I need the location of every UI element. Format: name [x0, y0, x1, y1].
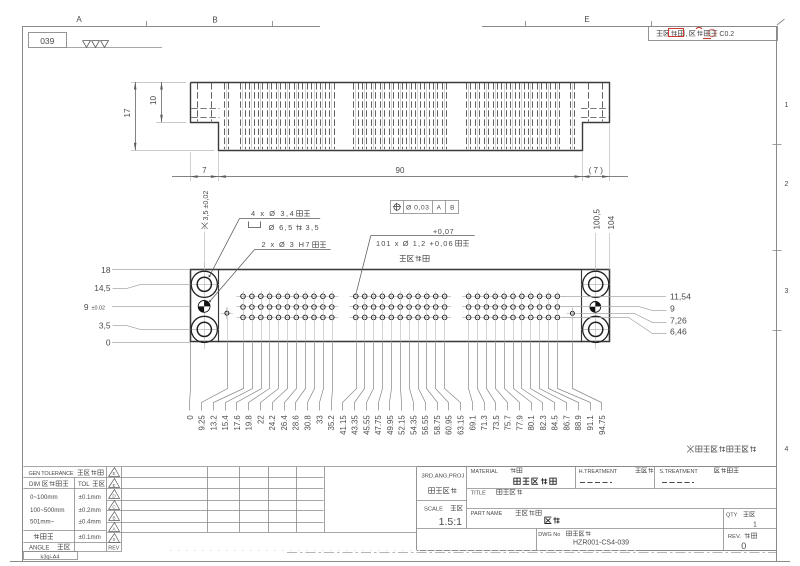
svg-text:49.95: 49.95 [386, 415, 395, 435]
svg-text:15.4: 15.4 [221, 415, 230, 431]
svg-text:( 7 ): ( 7 ) [589, 166, 604, 175]
svg-text:S.TREATMENT: S.TREATMENT [659, 469, 698, 475]
svg-text:9.25: 9.25 [198, 415, 207, 431]
svg-text:82.3: 82.3 [539, 415, 548, 430]
svg-text:REV.: REV. [728, 534, 741, 540]
svg-text:QTY: QTY [726, 513, 738, 519]
svg-text:±0.1mm: ±0.1mm [79, 494, 101, 501]
svg-text:9: 9 [84, 302, 89, 312]
svg-text:17: 17 [123, 108, 132, 118]
svg-text:17.6: 17.6 [233, 415, 242, 430]
svg-text:9: 9 [670, 303, 675, 313]
svg-text:GEN TOLERANCE: GEN TOLERANCE [29, 471, 74, 477]
svg-text:73.5: 73.5 [492, 415, 501, 431]
svg-text:C: C [112, 505, 116, 510]
svg-text:DIM: DIM [29, 482, 40, 488]
svg-text:104: 104 [607, 215, 616, 229]
svg-text:TITLE: TITLE [471, 490, 486, 496]
svg-text:3,5: 3,5 [306, 223, 320, 232]
svg-text:0: 0 [186, 415, 195, 420]
svg-text:33: 33 [315, 415, 324, 424]
svg-text:E: E [584, 15, 589, 24]
svg-text:63.15: 63.15 [457, 415, 466, 435]
svg-text:47.75: 47.75 [374, 415, 383, 435]
svg-text:3,5: 3,5 [99, 321, 111, 331]
svg-text:ANGLE: ANGLE [29, 546, 49, 552]
svg-text:18: 18 [101, 265, 111, 275]
svg-text:10: 10 [149, 96, 158, 106]
svg-text:2: 2 [785, 181, 789, 188]
svg-text:3,5 ±0,02: 3,5 ±0,02 [201, 191, 210, 221]
svg-text:3: 3 [785, 288, 789, 295]
svg-text:501mm~: 501mm~ [30, 519, 55, 526]
svg-text:45.55: 45.55 [362, 415, 371, 435]
svg-text:D: D [112, 494, 116, 499]
svg-text:C0.2: C0.2 [719, 31, 734, 38]
svg-text:039: 039 [40, 36, 54, 46]
svg-text:HZR001-CS4-039: HZR001-CS4-039 [573, 540, 629, 547]
svg-text:4: 4 [785, 446, 789, 453]
svg-text:B: B [450, 205, 454, 212]
svg-text:11,54: 11,54 [670, 292, 691, 302]
svg-text:B: B [212, 16, 217, 25]
svg-text:7,26: 7,26 [670, 315, 687, 325]
svg-text:88.9: 88.9 [574, 415, 583, 430]
svg-text:SCALE: SCALE [424, 506, 443, 512]
svg-text:60.95: 60.95 [445, 415, 454, 435]
svg-text:19.8: 19.8 [245, 415, 254, 430]
svg-text:2 x Ø 3 H7: 2 x Ø 3 H7 [262, 240, 311, 249]
svg-text:REV: REV [108, 546, 119, 552]
svg-text:7: 7 [202, 166, 207, 175]
svg-text:0~100mm: 0~100mm [30, 494, 58, 501]
svg-text:TOL: TOL [78, 482, 90, 488]
svg-text:±0.1mm: ±0.1mm [79, 534, 101, 541]
svg-text:94.75: 94.75 [598, 415, 607, 435]
svg-text:A: A [76, 15, 82, 24]
svg-text:Ø 6,5: Ø 6,5 [269, 223, 294, 232]
svg-text:26.4: 26.4 [280, 415, 289, 431]
svg-text:0: 0 [741, 541, 746, 551]
svg-text:,: , [686, 31, 688, 38]
svg-text:58.75: 58.75 [433, 415, 442, 435]
svg-text:69.1: 69.1 [468, 415, 477, 430]
svg-text:100,5: 100,5 [592, 209, 601, 230]
svg-text:+0,07: +0,07 [433, 227, 454, 236]
svg-text:E: E [112, 471, 115, 476]
svg-text:±0.4mm: ±0.4mm [79, 519, 101, 526]
svg-text:84.5: 84.5 [551, 415, 560, 431]
svg-text:100~500mm: 100~500mm [30, 507, 65, 514]
svg-text:A: A [437, 205, 442, 212]
svg-text:0: 0 [106, 338, 111, 348]
svg-text:k3qi-A4: k3qi-A4 [41, 554, 60, 560]
svg-text:56.55: 56.55 [421, 415, 430, 435]
svg-text:13.2: 13.2 [209, 415, 218, 430]
svg-text:0: 0 [113, 537, 116, 542]
svg-text:DWG No: DWG No [538, 532, 560, 538]
svg-text:43.35: 43.35 [351, 415, 360, 435]
svg-text:91.1: 91.1 [586, 415, 595, 430]
svg-text:77.9: 77.9 [515, 415, 524, 430]
svg-text:90: 90 [396, 166, 405, 175]
svg-text:80.1: 80.1 [527, 415, 536, 430]
svg-text:71.3: 71.3 [480, 415, 489, 430]
svg-text:28.6: 28.6 [292, 415, 301, 430]
svg-text:PART NAME: PART NAME [471, 511, 503, 517]
svg-text:H.TREATMENT: H.TREATMENT [579, 469, 618, 475]
svg-text:4 x Ø 3,4: 4 x Ø 3,4 [251, 209, 295, 218]
svg-text:54.35: 54.35 [409, 415, 418, 435]
svg-text:E: E [112, 483, 115, 488]
svg-text:30.8: 30.8 [304, 415, 313, 430]
svg-text:35.2: 35.2 [327, 415, 336, 430]
svg-text:86.7: 86.7 [562, 415, 571, 430]
svg-text:B: B [112, 516, 115, 521]
svg-text:±0.2mm: ±0.2mm [79, 507, 101, 514]
svg-text:1.5:1: 1.5:1 [439, 516, 463, 528]
svg-text:6,46: 6,46 [670, 327, 687, 337]
svg-text:1: 1 [785, 102, 789, 109]
svg-text:22: 22 [256, 415, 265, 424]
svg-text:75.7: 75.7 [504, 415, 513, 430]
svg-text:101 x Ø 1,2 +0,06: 101 x Ø 1,2 +0,06 [376, 239, 454, 248]
svg-text:A: A [112, 527, 116, 532]
svg-text:14,5: 14,5 [94, 283, 111, 293]
svg-text:MATERIAL: MATERIAL [471, 469, 498, 475]
svg-text:41.15: 41.15 [339, 415, 348, 435]
svg-text:Ø 0,03: Ø 0,03 [406, 205, 429, 212]
svg-text:1: 1 [753, 521, 757, 528]
svg-text:3RD,ANG,PROJ: 3RD,ANG,PROJ [422, 474, 465, 480]
svg-text:52.15: 52.15 [398, 415, 407, 435]
svg-text:24.2: 24.2 [268, 415, 277, 430]
svg-text:±0.02: ±0.02 [92, 306, 105, 312]
